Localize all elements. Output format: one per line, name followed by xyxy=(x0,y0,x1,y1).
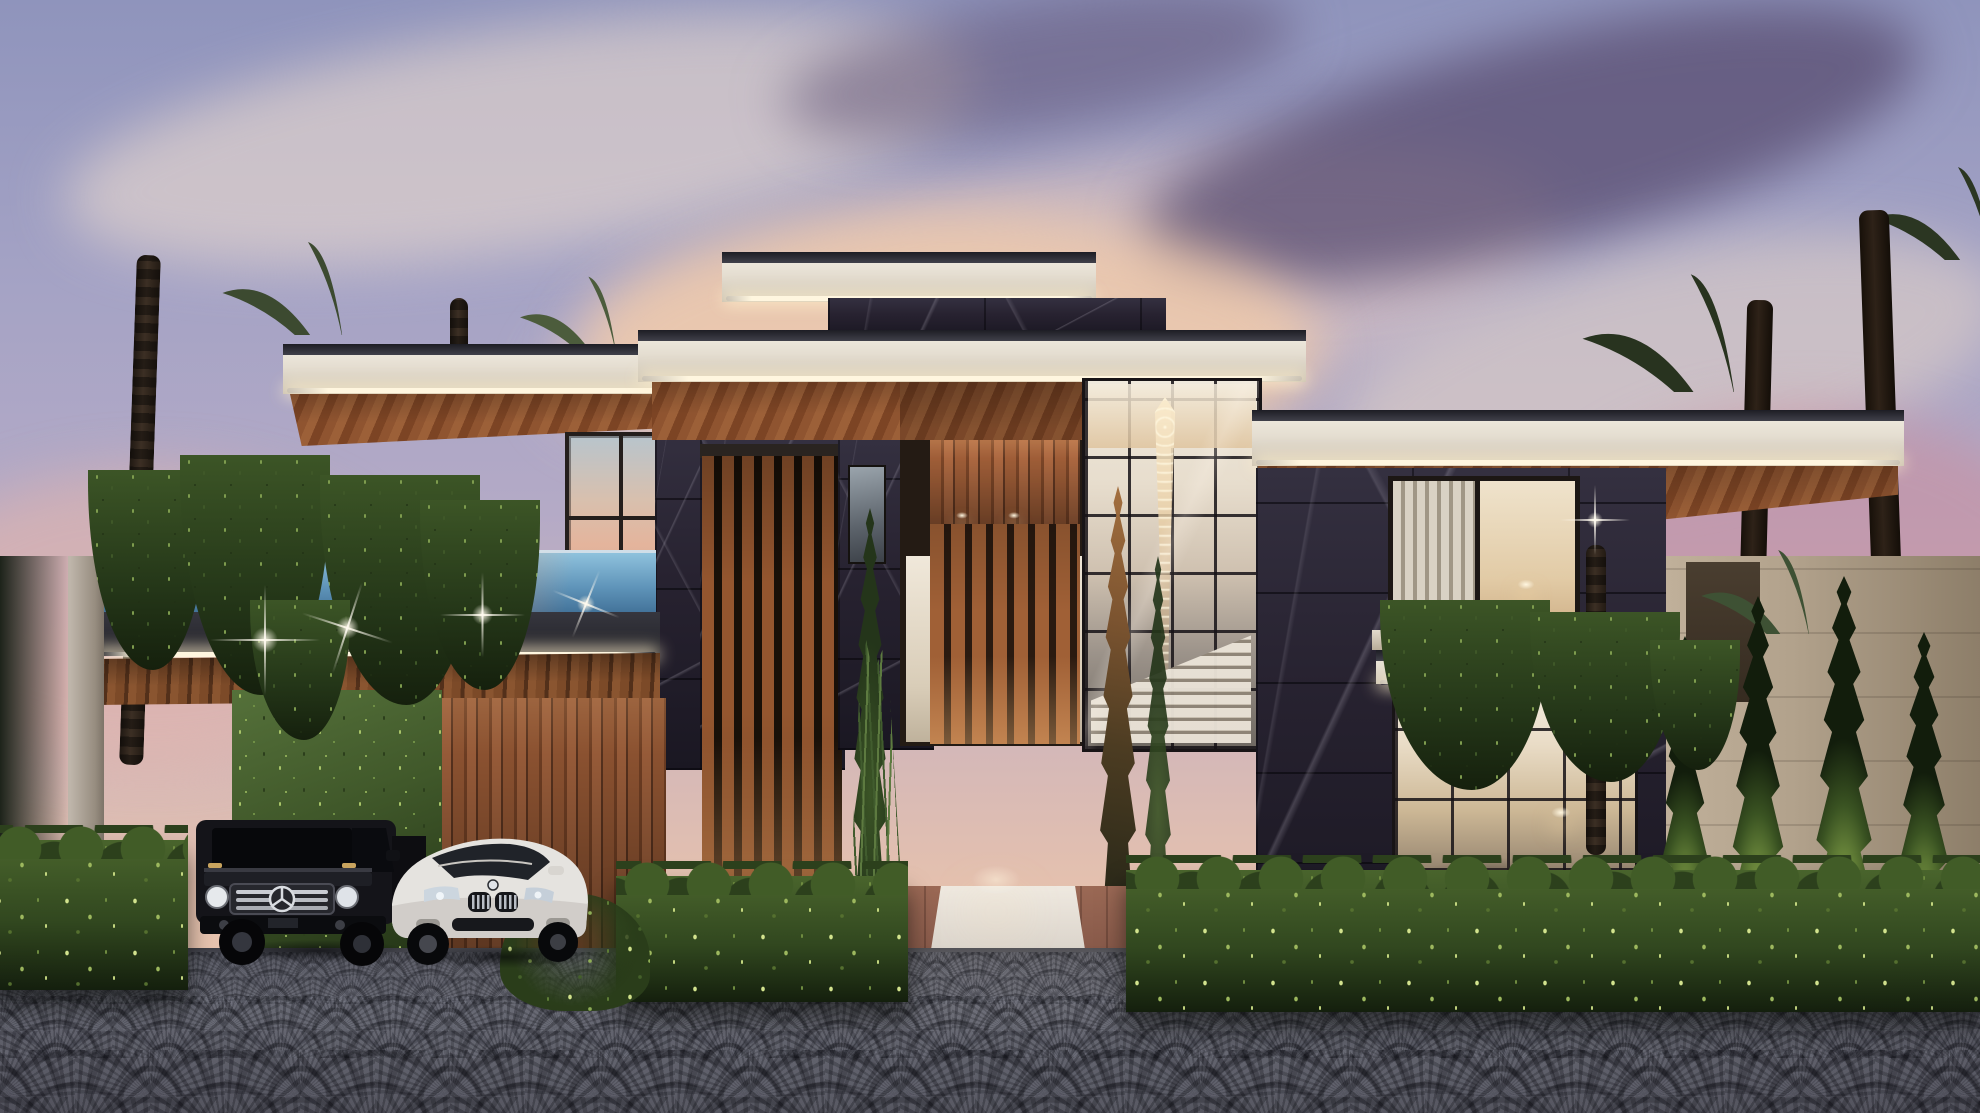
entrance-walkway xyxy=(930,886,1086,956)
entrance-upper-wood-panel xyxy=(930,440,1080,524)
window-mullion xyxy=(569,516,665,520)
porch-downlight xyxy=(956,512,968,519)
architectural-rendering xyxy=(0,0,1980,1113)
hedgerow-left-corner xyxy=(0,840,188,990)
white-suv-bmw-x6 xyxy=(380,806,606,968)
door-glow xyxy=(930,656,1080,744)
palm-shrub-dark xyxy=(1470,790,1650,890)
entrance-door-slats xyxy=(930,524,1080,744)
porch-downlight xyxy=(1008,512,1020,519)
palm-tree xyxy=(238,99,622,351)
silver-palm-shrub xyxy=(710,770,870,858)
hedgerow-center xyxy=(616,876,908,1002)
entrance-sidelight-left xyxy=(906,556,932,742)
walkway-glow xyxy=(972,866,1020,894)
cobblestone-pattern-near xyxy=(0,1050,1980,1113)
hedgerow-right xyxy=(1126,870,1980,1012)
center-top-roof-slab xyxy=(722,252,1096,302)
center-second-roof-slab xyxy=(638,330,1306,382)
silver-palm-shrub xyxy=(1125,775,1265,853)
